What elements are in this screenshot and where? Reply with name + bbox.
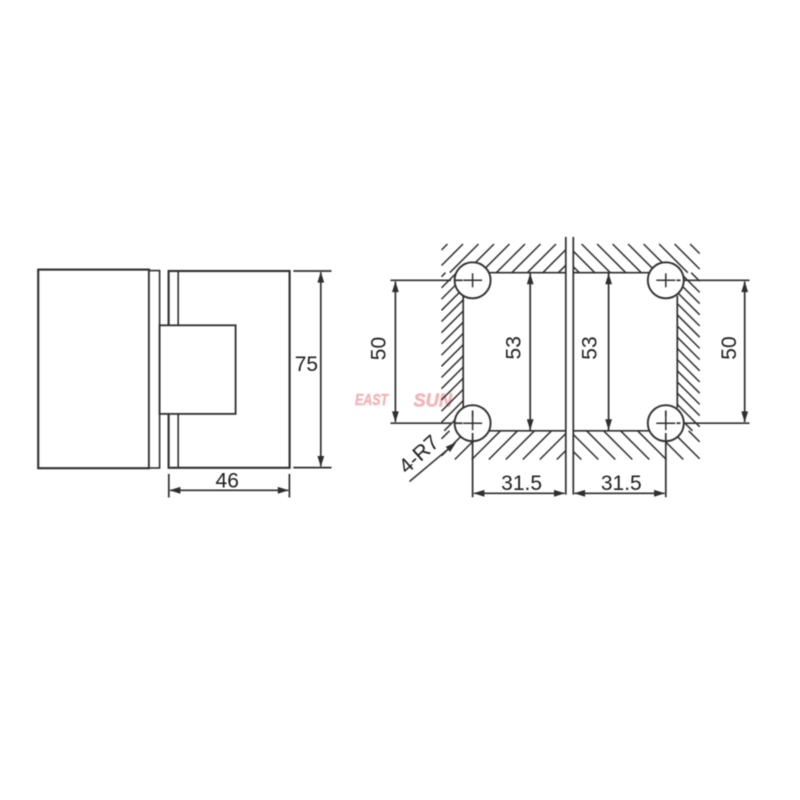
svg-text:53: 53: [502, 336, 525, 359]
svg-text:46: 46: [216, 470, 239, 493]
svg-text:EAST: EAST: [355, 392, 389, 409]
svg-text:53: 53: [579, 336, 602, 359]
svg-text:50: 50: [367, 337, 390, 360]
svg-text:SUN: SUN: [414, 389, 453, 410]
svg-text:31.5: 31.5: [501, 472, 542, 495]
svg-text:50: 50: [718, 336, 741, 359]
svg-text:75: 75: [295, 353, 318, 376]
svg-text:31.5: 31.5: [601, 472, 642, 495]
